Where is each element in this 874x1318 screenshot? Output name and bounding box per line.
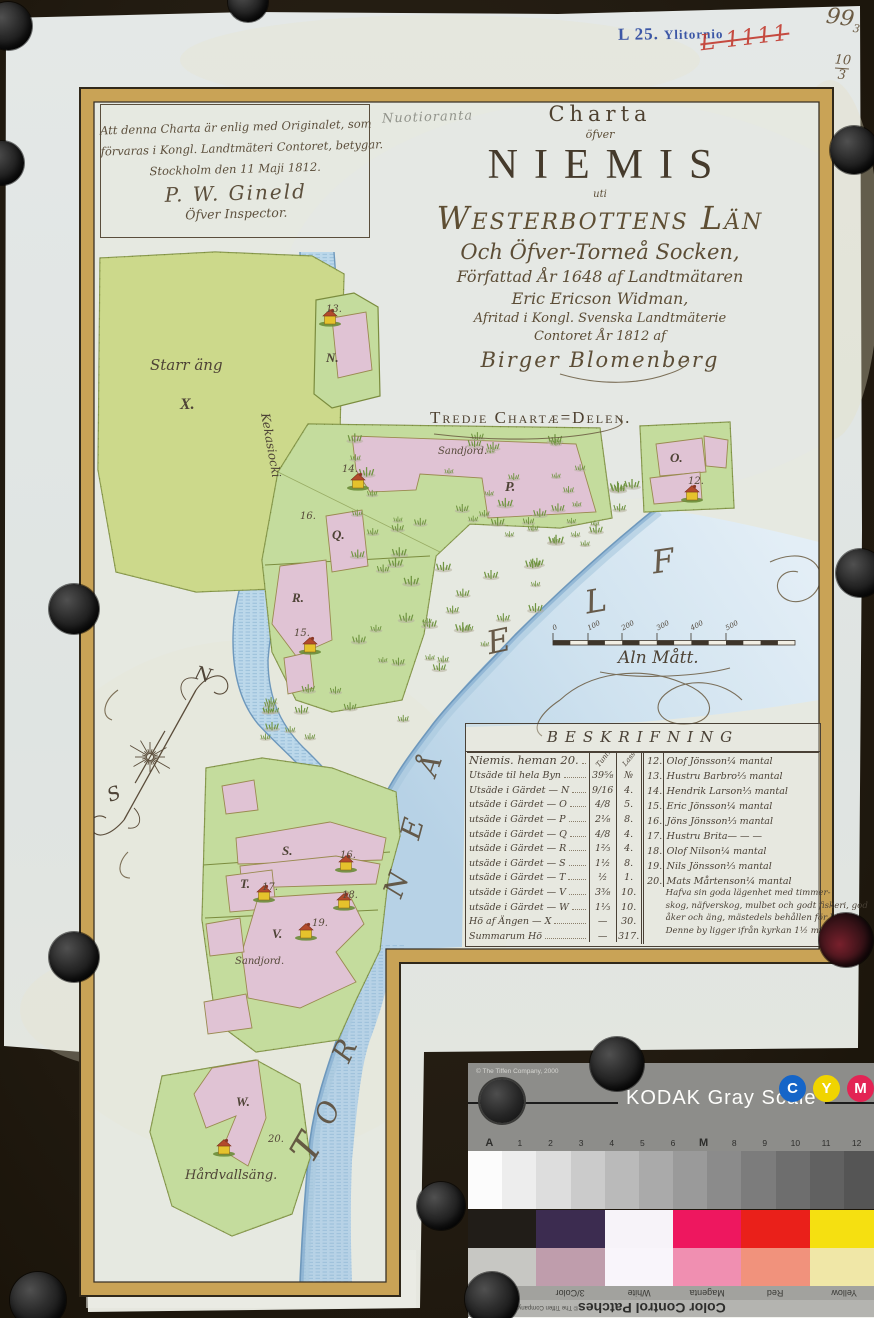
gray-patches — [468, 1151, 874, 1209]
beskrifning-table: BESKRIFNING Niemis. heman 20.Tunl.LassUt… — [465, 723, 821, 947]
gray-index: 2 — [535, 1138, 566, 1148]
table-row: 14.Hendrik Larson⅓ mantal — [644, 782, 868, 797]
color-label: White — [605, 1286, 673, 1300]
color-patches-bottom — [468, 1248, 874, 1286]
clip-knob — [49, 932, 99, 982]
gray-index: 10 — [780, 1138, 811, 1148]
table-row: 17.Hustru Brita— — — — [644, 827, 868, 842]
clip-knob — [465, 1272, 519, 1318]
color-label: Magenta — [673, 1286, 741, 1300]
table-row: utsäde i Gärdet — O4/85. — [466, 796, 641, 811]
gray-index: 11 — [811, 1138, 842, 1148]
calibration-dot: M — [847, 1075, 874, 1102]
gray-patch — [536, 1151, 570, 1209]
table-row: 19.Nils Jönsson⅓ mantal — [644, 857, 868, 872]
gray-patch — [502, 1151, 536, 1209]
color-patch — [536, 1210, 604, 1248]
certification-box: Att denna Charta är enlig med Originalet… — [100, 104, 370, 238]
gray-index-row: A123456M89101112 — [468, 1135, 874, 1151]
table-row: utsäde i Gärdet — Q4/84. — [466, 825, 641, 840]
table-row: 18.Olof Nilson¼ mantal — [644, 842, 868, 857]
title-county: Westerbottens Län — [398, 200, 802, 236]
archival-map-photo: 0100200300400500 L 25. Ylitornio L 1111 … — [0, 0, 874, 1318]
table-row: utsäde i Gärdet — S1½8. — [466, 854, 641, 869]
color-patch — [536, 1248, 604, 1286]
gray-patch — [571, 1151, 605, 1209]
gray-patch — [810, 1151, 844, 1209]
color-patch — [605, 1210, 673, 1248]
color-label: 3/Color — [536, 1286, 604, 1300]
color-patches-top — [468, 1210, 874, 1248]
gray-patch — [673, 1151, 707, 1209]
section-heading: Tredje Chartæ=Delen. — [430, 408, 631, 428]
color-strip-title: Color Control Patches — [578, 1300, 726, 1316]
gray-index: 3 — [566, 1138, 597, 1148]
table-row: 12.Olof Jönsson¼ mantal — [644, 752, 868, 767]
table-row: utsäde i Gärdet — P2⅛8. — [466, 810, 641, 825]
table-header: BESKRIFNING — [466, 724, 820, 752]
color-labels: B3/ColorWhiteMagentaRedYellow — [468, 1286, 874, 1300]
table-row: utsäde i Gärdet — T½1. — [466, 869, 641, 884]
table-row: 13.Hustru Barbro⅓ mantal — [644, 767, 868, 782]
gray-index: 6 — [658, 1138, 689, 1148]
table-row: Hö af Ängen — X—30. — [466, 913, 641, 928]
gray-index: A — [474, 1137, 505, 1149]
gray-index: 5 — [627, 1138, 658, 1148]
copyright-text: © The Tiffen Company, 2000 — [476, 1068, 558, 1075]
color-label: Red — [741, 1286, 809, 1300]
table-note: skog, näfverskog, mulbet och godt fisker… — [644, 900, 868, 913]
calibration-dot: C — [779, 1075, 806, 1102]
clip-knob — [417, 1182, 465, 1230]
clip-knob — [49, 584, 99, 634]
table-row: Niemis. heman 20.Tunl.Lass — [466, 752, 641, 767]
color-patch — [741, 1210, 809, 1248]
color-label: Yellow — [810, 1286, 874, 1300]
kodak-color-control: B3/ColorWhiteMagentaRedYellow Color Cont… — [468, 1210, 874, 1318]
table-left-column: Niemis. heman 20.Tunl.LassUtsäde til hel… — [466, 752, 641, 944]
corner-page-number: 993 — [824, 4, 862, 36]
table-row: 20.Mats Mårtenson¼ mantal — [644, 872, 868, 887]
gray-index: 4 — [596, 1138, 627, 1148]
clip-knob-red — [819, 913, 873, 967]
title-niemis: NIEMIS — [398, 141, 802, 189]
title-charta: Charta — [398, 102, 802, 126]
stamp-number: L 25. — [618, 24, 659, 44]
strip-button — [480, 1079, 524, 1123]
table-row: Utsäde i Gärdet — N9/164. — [466, 781, 641, 796]
gray-patch — [776, 1151, 810, 1209]
clip-knob — [590, 1037, 644, 1091]
title-copyist: Birger Blomenberg — [398, 348, 802, 372]
color-patch — [468, 1210, 536, 1248]
table-row: Summarum Hö—317. — [466, 927, 641, 942]
gray-patch — [605, 1151, 639, 1209]
table-row: utsäde i Gärdet — W1⅓10. — [466, 898, 641, 913]
map-title-block: Charta öfver NIEMIS uti Westerbottens Lä… — [398, 102, 802, 372]
color-patch — [673, 1248, 741, 1286]
calibration-dot: Y — [813, 1075, 840, 1102]
gray-patch — [639, 1151, 673, 1209]
table-row: 15.Eric Jönsson¼ mantal — [644, 797, 868, 812]
gray-index: 9 — [749, 1138, 780, 1148]
corner-fraction: 10 3 — [833, 53, 852, 83]
gray-index: 12 — [841, 1138, 872, 1148]
color-patch — [673, 1210, 741, 1248]
color-patch — [810, 1210, 874, 1248]
gray-patch — [707, 1151, 741, 1209]
table-row: Utsäde til hela Byn39⅝№ — [466, 767, 641, 782]
gray-index: 1 — [505, 1138, 536, 1148]
color-patch — [605, 1248, 673, 1286]
table-row: utsäde i Gärdet — V3⅜10. — [466, 883, 641, 898]
gray-patch — [468, 1151, 502, 1209]
kodak-gray-scale: © The Tiffen Company, 2000 KODAK Gray Sc… — [468, 1063, 874, 1209]
clip-knob — [830, 126, 874, 174]
table-row: utsäde i Gärdet — R1⅔4. — [466, 840, 641, 855]
color-patch — [741, 1248, 809, 1286]
gray-patch — [741, 1151, 775, 1209]
color-patch — [810, 1248, 874, 1286]
gray-patch — [844, 1151, 874, 1209]
table-row: 16.Jöns Jönsson⅓ mantal — [644, 812, 868, 827]
gray-index: 8 — [719, 1138, 750, 1148]
cym-dots: CYM — [779, 1075, 874, 1102]
table-note: Hafva sin goda lägenhet med timmer- — [644, 887, 868, 900]
gray-index: M — [688, 1137, 719, 1149]
